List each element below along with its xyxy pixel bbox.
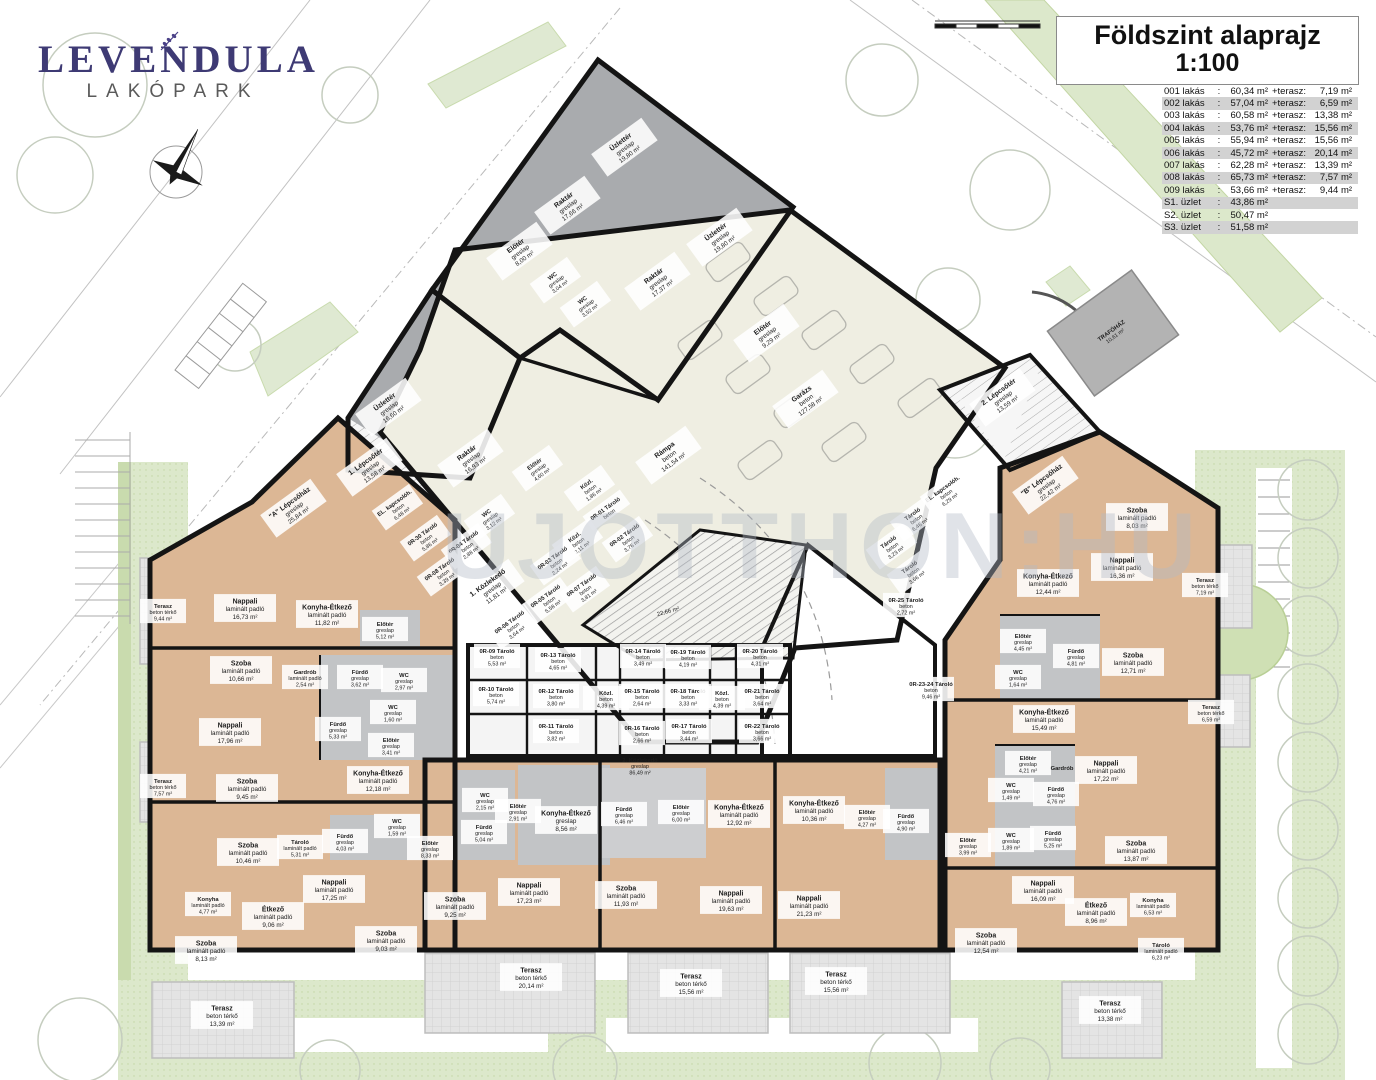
svg-text:0R-17 Tároló: 0R-17 Tároló [671, 724, 707, 730]
room-label: WCgreslap1,60 m² [370, 700, 416, 724]
area-legend: 001 lakás:60,34 m²+terasz:7,19 m²002 lak… [1162, 85, 1358, 234]
svg-text:3,41 m²: 3,41 m² [382, 751, 400, 757]
svg-text:Fürdő: Fürdő [1068, 649, 1085, 655]
room-label: Teraszbeton térkő7,57 m² [140, 774, 186, 798]
svg-text:0R-19 Tároló: 0R-19 Tároló [670, 650, 706, 656]
svg-text:greslap: greslap [475, 831, 493, 837]
svg-text:Terasz: Terasz [154, 604, 172, 610]
svg-text:Előtér: Előtér [673, 805, 690, 811]
svg-text:0R-25 Tároló: 0R-25 Tároló [888, 598, 924, 604]
svg-text:Terasz: Terasz [1196, 578, 1214, 584]
svg-text:laminált padló: laminált padló [795, 808, 834, 815]
svg-text:beton térkő: beton térkő [1198, 711, 1225, 717]
room-label: Szobalaminált padló10,46 m² [217, 838, 279, 866]
svg-text:laminált padló: laminált padló [1114, 660, 1153, 667]
svg-text:beton: beton [682, 730, 696, 736]
svg-text:beton: beton [899, 604, 913, 610]
room-label: WCgreslap1,49 m² [988, 778, 1034, 802]
svg-text:laminált padló: laminált padló [222, 668, 261, 675]
room-label: Gardróblaminált padló2,54 m² [282, 665, 328, 689]
svg-text:10,66 m²: 10,66 m² [229, 676, 254, 683]
svg-text:Fürdő: Fürdő [898, 814, 915, 820]
drawing-scale: 1:100 [1057, 49, 1358, 78]
svg-text:greslap: greslap [382, 744, 400, 750]
room-label: Előtérgreslap2,91 m² [495, 799, 541, 823]
svg-text:laminált padló: laminált padló [288, 676, 321, 682]
svg-text:greslap: greslap [421, 847, 439, 853]
lavender-sprig-icon [156, 30, 182, 56]
svg-text:Előtér: Előtér [377, 622, 394, 628]
svg-text:laminált padló: laminált padló [967, 940, 1006, 947]
room-label: Teraszbeton térkő20,14 m² [500, 963, 562, 991]
svg-text:3,82 m²: 3,82 m² [547, 737, 565, 743]
room-label: WCgreslap1,59 m² [374, 814, 420, 838]
svg-text:laminált padló: laminált padló [359, 778, 398, 785]
compass-icon [146, 117, 224, 198]
legend-row-apartment: 002 lakás:57,04 m²+terasz:6,59 m² [1162, 97, 1358, 109]
svg-text:1,59 m²: 1,59 m² [388, 832, 406, 838]
svg-text:12,92 m²: 12,92 m² [727, 820, 752, 827]
svg-text:greslap: greslap [376, 628, 394, 634]
svg-text:5,53 m²: 5,53 m² [488, 662, 506, 668]
svg-text:Nappali: Nappali [797, 896, 822, 903]
svg-text:15,56 m²: 15,56 m² [824, 987, 849, 994]
svg-text:beton: beton [549, 730, 563, 736]
room-label: Előtérgreslap3,41 m² [368, 733, 414, 757]
room-label: 0R-15 Tárolóbeton2,64 m² [619, 684, 665, 708]
svg-text:beton: beton [681, 695, 695, 701]
svg-text:4,65 m²: 4,65 m² [549, 666, 567, 672]
svg-text:2,66 m²: 2,66 m² [633, 739, 651, 745]
svg-text:greslap: greslap [1047, 793, 1065, 799]
room-label: Szobalaminált padló8,13 m² [175, 936, 237, 964]
room-label: Fürdőgreslap4,90 m² [883, 809, 929, 833]
svg-text:5,25 m²: 5,25 m² [1044, 844, 1062, 850]
svg-text:21,23 m²: 21,23 m² [797, 911, 822, 918]
svg-text:Konyha-Étkező: Konyha-Étkező [789, 799, 839, 808]
room-label: Étkezőlaminált padló9,06 m² [242, 902, 304, 930]
svg-text:9,25 m²: 9,25 m² [444, 912, 465, 919]
svg-text:Nappali: Nappali [322, 880, 347, 887]
svg-text:beton térkő: beton térkő [1094, 1008, 1126, 1015]
svg-text:greslap: greslap [509, 810, 527, 816]
svg-text:laminált padló: laminált padló [1077, 910, 1116, 917]
room-label: Fürdőgreslap5,33 m² [315, 717, 361, 741]
svg-text:4,19 m²: 4,19 m² [679, 663, 697, 669]
svg-text:beton térkő: beton térkő [150, 610, 177, 616]
room-label: Teraszbeton térkő7,19 m² [1182, 573, 1228, 597]
legend-row-shop: S1. üzlet:43,86 m² [1162, 197, 1358, 209]
svg-text:15,56 m²: 15,56 m² [679, 989, 704, 996]
svg-text:2,97 m²: 2,97 m² [395, 686, 413, 692]
legend-row-shop: S2. üzlet:50,47 m² [1162, 209, 1358, 221]
svg-text:9,46 m²: 9,46 m² [922, 695, 940, 701]
room-label: 0R-19 Tárolóbeton4,19 m² [665, 645, 711, 669]
svg-text:Nappali: Nappali [1094, 761, 1119, 768]
svg-text:Konyha-Étkező: Konyha-Étkező [1023, 572, 1073, 581]
svg-text:Szoba: Szoba [445, 897, 465, 904]
svg-text:laminált padló: laminált padló [720, 812, 759, 819]
room-label: Konyhalaminált padló6,53 m² [1130, 893, 1176, 917]
svg-text:greslap: greslap [336, 840, 354, 846]
svg-text:Terasz: Terasz [520, 968, 542, 975]
room-label: Fürdőgreslap5,04 m² [461, 820, 507, 844]
svg-text:15,49 m²: 15,49 m² [1032, 725, 1057, 732]
room-label: 0R-13 Tárolóbeton4,65 m² [535, 648, 581, 672]
svg-text:Terasz: Terasz [825, 972, 847, 979]
room-label: Szobalaminált padló11,93 m² [595, 881, 657, 909]
svg-text:greslap: greslap [959, 844, 977, 850]
svg-text:laminált padló: laminált padló [191, 903, 224, 909]
room-label: Teraszbeton térkő13,39 m² [191, 1001, 253, 1029]
room-label: 0R-16 Tárolóbeton2,66 m² [619, 721, 665, 745]
room-label: Előtérgreslap5,12 m² [362, 617, 408, 641]
svg-text:laminált padló: laminált padló [229, 850, 268, 857]
room-label: WCgreslap1,89 m² [988, 828, 1034, 852]
legend-row-apartment: 004 lakás:53,76 m²+terasz:15,56 m² [1162, 122, 1358, 134]
svg-text:Fürdő: Fürdő [337, 834, 354, 840]
svg-text:beton: beton [549, 695, 563, 701]
legend-row-apartment: 005 lakás:55,94 m²+terasz:15,56 m² [1162, 135, 1358, 147]
svg-text:beton: beton [755, 730, 769, 736]
svg-text:0R-15 Tároló: 0R-15 Tároló [624, 689, 660, 695]
svg-text:Szoba: Szoba [238, 843, 258, 850]
svg-text:laminált padló: laminált padló [1118, 515, 1157, 522]
svg-text:6,46 m²: 6,46 m² [615, 820, 633, 826]
svg-text:Közl.: Közl. [715, 691, 729, 697]
room-label: Nappalilaminált padló21,23 m² [778, 891, 840, 919]
room-label: Fürdőgreslap4,03 m² [322, 829, 368, 853]
svg-text:6,00 m²: 6,00 m² [672, 818, 690, 824]
room-label: Szobalaminált padló8,03 m² [1106, 503, 1168, 531]
room-label: 0R-14 Tárolóbeton3,49 m² [620, 644, 666, 668]
svg-text:4,27 m²: 4,27 m² [858, 823, 876, 829]
svg-text:Fürdő: Fürdő [1045, 831, 1062, 837]
svg-text:Fürdő: Fürdő [330, 722, 347, 728]
svg-text:laminált padló: laminált padló [1025, 717, 1064, 724]
title-block: Földszint alaprajz 1:100 [1056, 16, 1359, 85]
room-label: Előtérgreslap6,00 m² [658, 800, 704, 824]
svg-text:Terasz: Terasz [1099, 1001, 1121, 1008]
svg-text:Nappali: Nappali [218, 723, 243, 730]
svg-text:0R-11 Tároló: 0R-11 Tároló [539, 724, 574, 730]
legend-row-apartment: 003 lakás:60,58 m²+terasz:13,38 m² [1162, 110, 1358, 122]
room-label: Szobalaminált padló9,45 m² [216, 774, 278, 802]
legend-row-shop: S3. üzlet:51,58 m² [1162, 221, 1358, 233]
drawing-title: Földszint alaprajz [1057, 21, 1358, 49]
svg-text:beton térkő: beton térkő [1192, 584, 1219, 590]
svg-text:beton térkő: beton térkő [150, 785, 177, 791]
room-label: 0R-12 Tárolóbeton3,80 m² [533, 684, 579, 708]
svg-text:laminált padló: laminált padló [712, 898, 751, 905]
svg-text:Szoba: Szoba [376, 931, 396, 938]
svg-text:Szoba: Szoba [616, 886, 636, 893]
svg-text:greslap: greslap [1044, 837, 1062, 843]
svg-text:beton: beton [715, 697, 729, 703]
svg-text:greslap: greslap [388, 825, 406, 831]
svg-text:laminált padló: laminált padló [308, 612, 347, 619]
svg-text:4,76 m²: 4,76 m² [1047, 800, 1065, 806]
svg-text:greslap: greslap [351, 676, 369, 682]
room-label: 0R-10 Tárolóbeton5,74 m² [473, 682, 519, 706]
svg-text:WC: WC [480, 793, 490, 799]
svg-text:Szoba: Szoba [1126, 841, 1146, 848]
svg-text:greslap: greslap [329, 728, 347, 734]
svg-text:Szoba: Szoba [1123, 653, 1143, 660]
svg-text:WC: WC [1013, 670, 1023, 676]
svg-text:8,96 m²: 8,96 m² [1085, 918, 1106, 925]
svg-text:beton térkő: beton térkő [206, 1013, 238, 1020]
svg-text:Szoba: Szoba [231, 661, 251, 668]
svg-text:0R-16 Tároló: 0R-16 Tároló [624, 726, 660, 732]
svg-text:beton térkő: beton térkő [675, 981, 707, 988]
svg-text:3,64 m²: 3,64 m² [753, 702, 771, 708]
svg-text:17,23 m²: 17,23 m² [517, 898, 542, 905]
svg-text:WC: WC [392, 819, 402, 825]
room-label: Gardrób [1051, 766, 1074, 772]
svg-text:1,60 m²: 1,60 m² [384, 718, 402, 724]
svg-text:laminált padló: laminált padló [211, 730, 250, 737]
svg-text:beton: beton [490, 655, 504, 661]
legend-row-apartment: 006 lakás:45,72 m²+terasz:20,14 m² [1162, 147, 1358, 159]
svg-text:greslap: greslap [631, 764, 649, 770]
svg-text:greslap: greslap [858, 816, 876, 822]
room-label: Nappalilaminált padló16,09 m² [1012, 876, 1074, 904]
room-label: 0R-21 Tárolóbeton3,64 m² [739, 684, 785, 708]
svg-text:13,39 m²: 13,39 m² [210, 1021, 235, 1028]
svg-text:laminált padló: laminált padló [436, 904, 475, 911]
svg-text:12,54 m²: 12,54 m² [974, 948, 999, 955]
svg-text:4,03 m²: 4,03 m² [336, 847, 354, 853]
room-label: Konyha-Étkezőlaminált padló10,36 m² [783, 796, 845, 824]
room-label: Szobalaminált padló9,03 m² [355, 926, 417, 954]
svg-text:laminált padló: laminált padló [283, 846, 316, 852]
room-label: Szobalaminált padló12,54 m² [955, 928, 1017, 956]
svg-text:Terasz: Terasz [211, 1006, 233, 1013]
svg-text:9,44 m²: 9,44 m² [154, 617, 172, 623]
svg-text:greslap: greslap [1067, 655, 1085, 661]
svg-text:laminált padló: laminált padló [1024, 888, 1063, 895]
room-label: Nappalilaminált padló17,22 m² [1075, 756, 1137, 784]
svg-text:laminált padló: laminált padló [1029, 581, 1068, 588]
svg-text:1,49 m²: 1,49 m² [1002, 796, 1020, 802]
room-label: Szobalaminált padló9,25 m² [424, 892, 486, 920]
svg-text:9,03 m²: 9,03 m² [375, 946, 396, 953]
svg-text:3,49 m²: 3,49 m² [634, 662, 652, 668]
svg-text:19,63 m²: 19,63 m² [719, 906, 744, 913]
svg-text:Konyha-Étkező: Konyha-Étkező [302, 603, 352, 612]
svg-text:Fürdő: Fürdő [616, 807, 633, 813]
svg-text:0R-22 Tároló: 0R-22 Tároló [744, 724, 780, 730]
svg-text:beton: beton [755, 695, 769, 701]
room-label: Nappalilaminált padló19,63 m² [700, 886, 762, 914]
svg-text:12,18 m²: 12,18 m² [366, 786, 391, 793]
svg-text:laminált padló: laminált padló [510, 890, 549, 897]
room-label: 0R-20 Tárolóbeton4,31 m² [737, 644, 783, 668]
svg-text:laminált padló: laminált padló [228, 786, 267, 793]
svg-text:laminált padló: laminált padló [607, 893, 646, 900]
svg-text:2,15 m²: 2,15 m² [476, 806, 494, 812]
svg-text:11,93 m²: 11,93 m² [614, 901, 638, 908]
svg-text:8,56 m²: 8,56 m² [555, 826, 576, 833]
room-label: Előtérgreslap4,21 m² [1005, 751, 1051, 775]
svg-text:beton: beton [635, 695, 649, 701]
svg-text:5,04 m²: 5,04 m² [475, 838, 493, 844]
svg-text:beton: beton [489, 693, 503, 699]
room-label: Teraszbeton térkő6,59 m² [1188, 700, 1234, 724]
room-label: Konyha-Étkezőlaminált padló11,82 m² [296, 600, 358, 628]
svg-text:laminált padló: laminált padló [1103, 565, 1142, 572]
svg-text:Előtér: Előtér [510, 804, 527, 810]
svg-text:WC: WC [399, 673, 409, 679]
room-label: Fürdőgreslap5,25 m² [1030, 826, 1076, 850]
svg-text:Nappali: Nappali [233, 599, 258, 606]
room-label: WCgreslap2,97 m² [381, 668, 427, 692]
svg-text:0R-21 Tároló: 0R-21 Tároló [744, 689, 780, 695]
svg-text:9,45 m²: 9,45 m² [236, 794, 257, 801]
svg-text:Konyha-Étkező: Konyha-Étkező [1019, 708, 1069, 717]
svg-text:1,64 m²: 1,64 m² [1009, 683, 1027, 689]
svg-text:Szoba: Szoba [237, 779, 257, 786]
room-label: Előtérgreslap4,45 m² [1000, 629, 1046, 653]
svg-text:Tároló: Tároló [291, 840, 309, 846]
svg-text:laminált padló: laminált padló [1087, 768, 1126, 775]
svg-text:4,77 m²: 4,77 m² [199, 910, 217, 916]
svg-text:4,45 m²: 4,45 m² [1014, 647, 1032, 653]
room-label: Fürdőgreslap4,76 m² [1033, 782, 1079, 806]
svg-text:Előtér: Előtér [1020, 756, 1037, 762]
svg-text:Nappali: Nappali [1110, 558, 1135, 565]
svg-text:laminált padló: laminált padló [315, 887, 354, 894]
svg-text:6,23 m²: 6,23 m² [1152, 956, 1170, 962]
svg-text:7,19 m²: 7,19 m² [1196, 591, 1214, 597]
legend-row-apartment: 007 lakás:62,28 m²+terasz:13,39 m² [1162, 159, 1358, 171]
svg-text:3,44 m²: 3,44 m² [680, 737, 698, 743]
svg-text:5,33 m²: 5,33 m² [329, 735, 347, 741]
svg-text:beton térkő: beton térkő [820, 979, 852, 986]
svg-text:16,36 m²: 16,36 m² [1110, 573, 1135, 580]
svg-text:Fürdő: Fürdő [476, 825, 493, 831]
svg-text:3,99 m²: 3,99 m² [959, 851, 977, 857]
svg-text:Szoba: Szoba [1127, 508, 1147, 515]
svg-text:0R-13 Tároló: 0R-13 Tároló [540, 653, 576, 659]
svg-text:12,71 m²: 12,71 m² [1121, 668, 1146, 675]
svg-text:WC: WC [1006, 783, 1016, 789]
svg-text:6,53 m²: 6,53 m² [1144, 911, 1162, 917]
room-label: Nappalilaminált padló17,96 m² [199, 718, 261, 746]
svg-text:5,12 m²: 5,12 m² [376, 635, 394, 641]
svg-text:0R-14 Tároló: 0R-14 Tároló [625, 649, 661, 655]
svg-text:10,36 m²: 10,36 m² [802, 816, 827, 823]
svg-text:greslap: greslap [1002, 839, 1020, 845]
room-label: Étkezőlaminált padló8,96 m² [1065, 898, 1127, 926]
svg-text:10,46 m²: 10,46 m² [236, 858, 261, 865]
room-label: Előtérgreslap3,99 m² [945, 833, 991, 857]
room-label: 0R-11 Tárolóbeton3,82 m² [533, 719, 579, 743]
svg-text:greslap: greslap [384, 711, 402, 717]
svg-text:4,21 m²: 4,21 m² [1019, 769, 1037, 775]
svg-text:laminált padló: laminált padló [254, 914, 293, 921]
svg-text:11,82 m²: 11,82 m² [315, 620, 339, 627]
svg-text:Fürdő: Fürdő [352, 670, 369, 676]
svg-text:4,39 m²: 4,39 m² [713, 704, 731, 710]
svg-text:17,25 m²: 17,25 m² [322, 895, 347, 902]
svg-text:Közl.: Közl. [599, 691, 613, 697]
logo: LEVENDULA LAKÓPARK [38, 40, 308, 103]
svg-text:0R-12 Tároló: 0R-12 Tároló [538, 689, 574, 695]
svg-text:beton: beton [599, 697, 613, 703]
svg-text:Nappali: Nappali [517, 883, 542, 890]
room-label: 0R-23-24 Tárolóbeton9,46 m² [908, 677, 954, 701]
svg-text:Fürdő: Fürdő [1048, 787, 1065, 793]
svg-text:WC: WC [388, 705, 398, 711]
room-label: Konyha-Étkezőlaminált padló15,49 m² [1013, 705, 1075, 733]
svg-text:laminált padló: laminált padló [226, 606, 265, 613]
svg-text:17,96 m²: 17,96 m² [218, 738, 243, 745]
svg-text:13,38 m²: 13,38 m² [1098, 1016, 1123, 1023]
svg-text:Előtér: Előtér [1015, 634, 1032, 640]
svg-text:Étkező: Étkező [262, 905, 284, 914]
svg-text:2. Közlekedő: 2. Közlekedő [622, 758, 658, 764]
legend-row-apartment: 008 lakás:65,73 m²+terasz:7,57 m² [1162, 172, 1358, 184]
room-label: Teraszbeton térkő9,44 m² [140, 599, 186, 623]
svg-text:0R-23-24 Tároló: 0R-23-24 Tároló [909, 682, 953, 688]
svg-text:Gardrób: Gardrób [1051, 766, 1074, 772]
svg-text:3,62 m²: 3,62 m² [351, 683, 369, 689]
svg-text:Konyha: Konyha [1142, 898, 1164, 904]
svg-text:greslap: greslap [395, 679, 413, 685]
svg-text:Előtér: Előtér [859, 810, 876, 816]
svg-text:laminált padló: laminált padló [187, 948, 226, 955]
svg-text:6,59 m²: 6,59 m² [1202, 718, 1220, 724]
svg-text:Tároló: Tároló [1152, 943, 1170, 949]
room-label: Konyhalaminált padló4,77 m² [185, 892, 231, 916]
room-label: Fürdőgreslap3,62 m² [337, 665, 383, 689]
svg-text:Terasz: Terasz [154, 779, 172, 785]
svg-text:beton: beton [636, 655, 650, 661]
room-label: Tárolólaminált padló5,31 m² [277, 835, 323, 859]
svg-text:2,64 m²: 2,64 m² [633, 702, 651, 708]
room-label: Konyha-Étkezőlaminált padló12,44 m² [1017, 569, 1079, 597]
svg-text:9,06 m²: 9,06 m² [262, 922, 283, 929]
svg-text:86,49 m²: 86,49 m² [629, 771, 650, 777]
svg-text:4,39 m²: 4,39 m² [597, 704, 615, 710]
svg-text:greslap: greslap [1019, 762, 1037, 768]
room-label: Konyha-Étkezőgreslap8,56 m² [535, 806, 597, 834]
logo-subtitle: LAKÓPARK [38, 81, 308, 103]
room-label: Előtérgreslap8,33 m² [407, 836, 453, 860]
svg-text:3,33 m²: 3,33 m² [679, 702, 697, 708]
svg-text:Nappali: Nappali [1031, 881, 1056, 888]
svg-text:7,57 m²: 7,57 m² [154, 792, 172, 798]
svg-text:13,87 m²: 13,87 m² [1124, 856, 1149, 863]
svg-text:Konyha-Étkező: Konyha-Étkező [714, 803, 764, 812]
room-label: Konyha-Étkezőlaminált padló12,92 m² [708, 800, 770, 828]
svg-text:17,22 m²: 17,22 m² [1094, 776, 1119, 783]
room-label: Teraszbeton térkő13,38 m² [1079, 996, 1141, 1024]
svg-text:beton: beton [551, 659, 565, 665]
svg-text:Gardrób: Gardrób [294, 670, 317, 676]
svg-text:beton: beton [753, 655, 767, 661]
svg-text:4,31 m²: 4,31 m² [751, 662, 769, 668]
svg-text:16,73 m²: 16,73 m² [233, 614, 258, 621]
svg-text:0R-20 Tároló: 0R-20 Tároló [742, 649, 778, 655]
room-label: Teraszbeton térkő15,56 m² [660, 969, 722, 997]
svg-text:4,81 m²: 4,81 m² [1067, 662, 1085, 668]
svg-text:1,89 m²: 1,89 m² [1002, 846, 1020, 852]
svg-text:4,90 m²: 4,90 m² [897, 827, 915, 833]
svg-text:greslap: greslap [1002, 789, 1020, 795]
